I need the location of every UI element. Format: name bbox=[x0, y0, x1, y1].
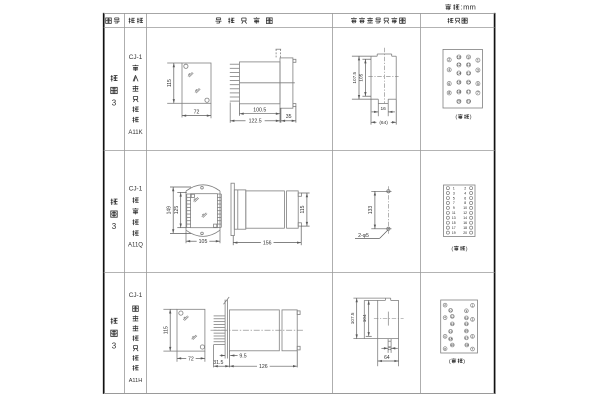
svg-text:2: 2 bbox=[448, 58, 450, 62]
svg-text:14: 14 bbox=[463, 216, 467, 220]
svg-text:31.5: 31.5 bbox=[213, 360, 223, 366]
svg-text:133: 133 bbox=[368, 206, 374, 215]
svg-text:(: ( bbox=[449, 359, 451, 365]
svg-text:16: 16 bbox=[381, 106, 387, 112]
svg-text:122.5: 122.5 bbox=[249, 119, 262, 125]
svg-text:2-φ5: 2-φ5 bbox=[358, 233, 369, 239]
svg-text:156: 156 bbox=[263, 240, 272, 246]
svg-text:3: 3 bbox=[112, 98, 117, 107]
svg-text:): ) bbox=[470, 115, 472, 121]
svg-text:A11Q: A11Q bbox=[128, 243, 143, 249]
svg-text:7: 7 bbox=[477, 91, 479, 95]
svg-text:): ) bbox=[466, 246, 468, 252]
svg-text:7: 7 bbox=[453, 201, 455, 205]
svg-text:19: 19 bbox=[452, 231, 456, 235]
svg-text:18: 18 bbox=[457, 90, 461, 94]
svg-text:9.5: 9.5 bbox=[239, 353, 246, 359]
svg-text:6: 6 bbox=[448, 82, 450, 86]
svg-text:3: 3 bbox=[453, 191, 455, 195]
svg-text:): ) bbox=[463, 359, 465, 365]
svg-text:35: 35 bbox=[286, 114, 292, 120]
svg-text:72: 72 bbox=[194, 110, 200, 116]
svg-text:CJ-1: CJ-1 bbox=[129, 54, 143, 61]
svg-text:18: 18 bbox=[463, 226, 467, 230]
svg-text:(: ( bbox=[451, 246, 453, 252]
svg-text:14: 14 bbox=[457, 71, 461, 75]
svg-text:115: 115 bbox=[300, 205, 306, 213]
svg-text:mm: mm bbox=[463, 3, 476, 12]
svg-text:19: 19 bbox=[465, 343, 469, 347]
svg-text:11: 11 bbox=[467, 63, 471, 67]
svg-text:A11H: A11H bbox=[129, 378, 143, 384]
svg-text:107.5: 107.5 bbox=[352, 71, 357, 83]
svg-text:8: 8 bbox=[448, 91, 450, 95]
svg-text:104: 104 bbox=[362, 314, 367, 322]
svg-text:13: 13 bbox=[452, 216, 456, 220]
svg-text:3: 3 bbox=[112, 222, 117, 231]
svg-text:1: 1 bbox=[477, 58, 479, 62]
svg-text:5: 5 bbox=[477, 82, 479, 86]
svg-text:14: 14 bbox=[451, 322, 455, 326]
svg-text:10: 10 bbox=[449, 308, 453, 312]
svg-text:(64): (64) bbox=[379, 120, 388, 126]
svg-text:10: 10 bbox=[457, 55, 461, 59]
svg-text:12: 12 bbox=[451, 314, 455, 318]
svg-text:105: 105 bbox=[199, 239, 208, 245]
svg-text:9: 9 bbox=[468, 55, 470, 59]
svg-text:20: 20 bbox=[457, 100, 461, 104]
svg-text:125: 125 bbox=[174, 206, 180, 215]
svg-text:126: 126 bbox=[259, 364, 268, 370]
svg-text:15: 15 bbox=[452, 221, 456, 225]
svg-text:105: 105 bbox=[359, 73, 364, 81]
svg-text:16: 16 bbox=[457, 80, 461, 84]
svg-text:3: 3 bbox=[477, 68, 479, 72]
svg-text:15: 15 bbox=[465, 329, 469, 333]
svg-text:17: 17 bbox=[465, 336, 469, 340]
svg-text:18: 18 bbox=[449, 337, 453, 341]
svg-text:100.5: 100.5 bbox=[253, 108, 266, 114]
svg-text:12: 12 bbox=[463, 211, 467, 215]
svg-text:72: 72 bbox=[188, 356, 194, 362]
svg-text:115: 115 bbox=[167, 79, 173, 87]
svg-text:1: 1 bbox=[453, 186, 455, 190]
svg-text:A11K: A11K bbox=[128, 130, 142, 136]
svg-text:2: 2 bbox=[464, 186, 466, 190]
svg-text:107.5: 107.5 bbox=[350, 312, 355, 324]
svg-text:9: 9 bbox=[453, 206, 455, 210]
svg-text:20: 20 bbox=[463, 231, 467, 235]
svg-text:6: 6 bbox=[464, 196, 466, 200]
svg-text:15: 15 bbox=[467, 80, 471, 84]
svg-text:CJ-1: CJ-1 bbox=[129, 185, 143, 192]
svg-text:11: 11 bbox=[452, 211, 456, 215]
svg-text:149: 149 bbox=[166, 206, 172, 215]
svg-text:CJ-1: CJ-1 bbox=[129, 292, 143, 299]
svg-text:13: 13 bbox=[467, 71, 471, 75]
svg-text:17: 17 bbox=[467, 90, 471, 94]
svg-text:3: 3 bbox=[112, 341, 117, 350]
svg-text:12: 12 bbox=[457, 63, 461, 67]
svg-text:5: 5 bbox=[453, 196, 455, 200]
svg-text:8: 8 bbox=[464, 201, 466, 205]
svg-text:17: 17 bbox=[452, 226, 456, 230]
svg-text:16: 16 bbox=[449, 329, 453, 333]
svg-text:16: 16 bbox=[463, 221, 467, 225]
svg-text:11: 11 bbox=[465, 316, 468, 320]
svg-text:4: 4 bbox=[464, 191, 466, 195]
svg-text:20: 20 bbox=[451, 343, 455, 347]
svg-text:4: 4 bbox=[448, 68, 450, 72]
svg-text:115: 115 bbox=[163, 326, 169, 334]
svg-text:10: 10 bbox=[463, 206, 467, 210]
svg-text:16: 16 bbox=[387, 345, 392, 350]
svg-text:64: 64 bbox=[384, 355, 390, 361]
svg-text:13: 13 bbox=[465, 322, 469, 326]
svg-text:19: 19 bbox=[467, 100, 471, 104]
svg-text:(: ( bbox=[455, 115, 457, 121]
